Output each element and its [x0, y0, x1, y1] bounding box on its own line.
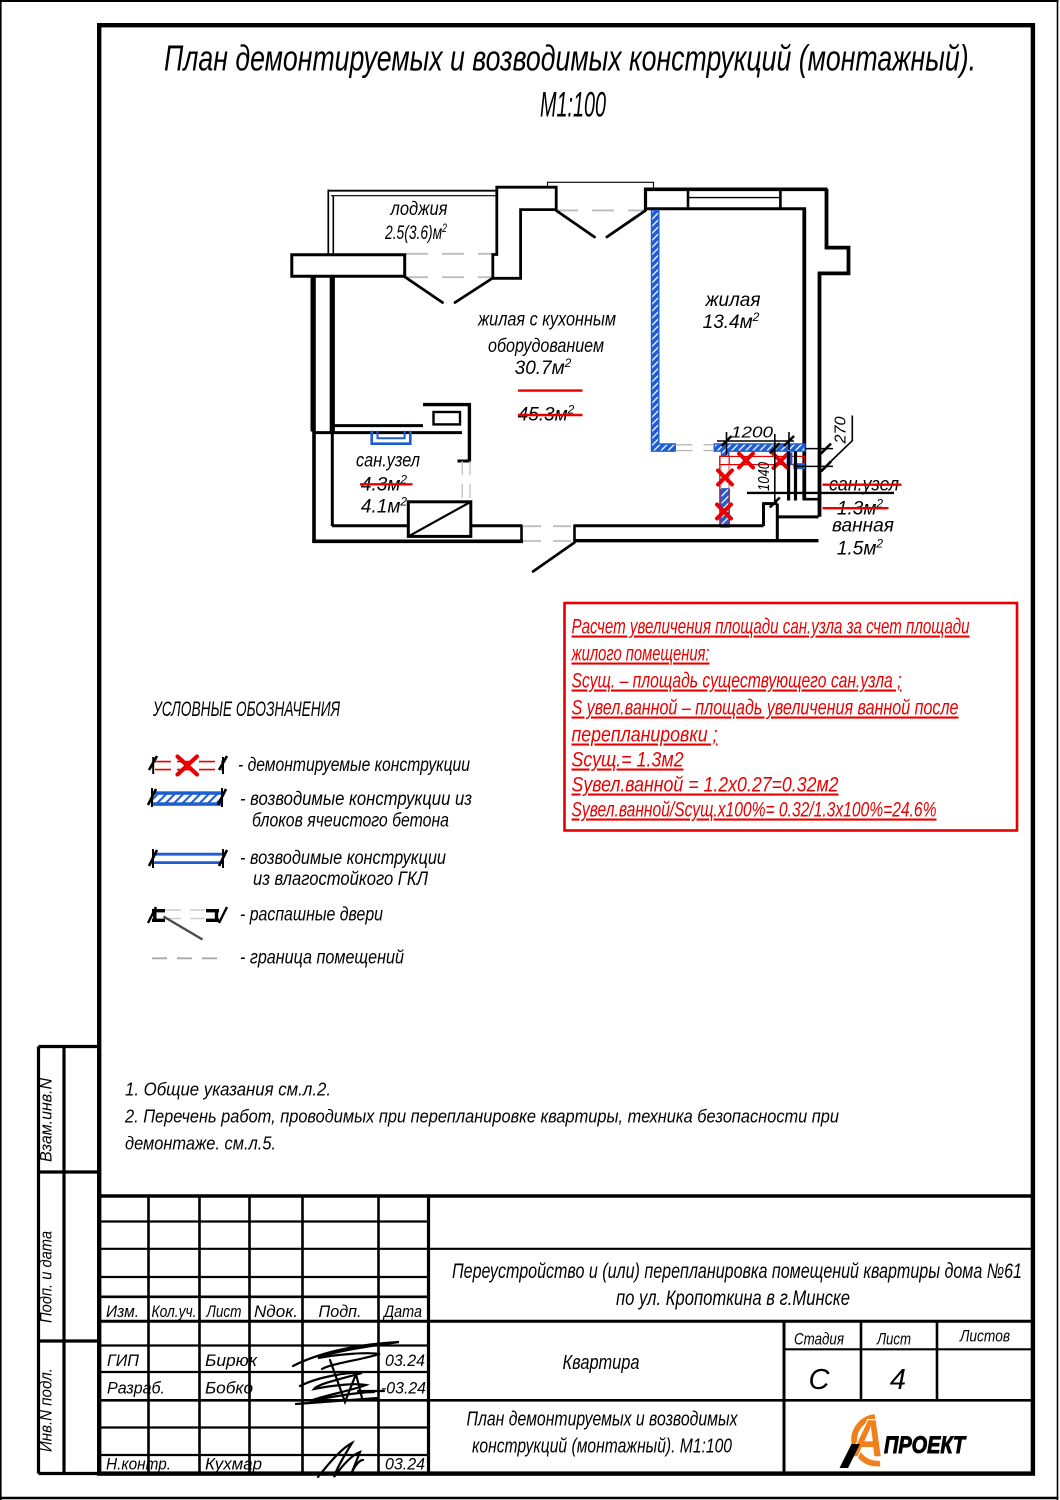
svg-text:Подп. и дата: Подп. и дата [37, 1231, 56, 1323]
svg-text:Sсущ. – площадь существующего: Sсущ. – площадь существующего сан.узла ; [572, 670, 902, 693]
svg-text:1.5м2: 1.5м2 [837, 537, 883, 560]
svg-text:Лист: Лист [876, 1330, 911, 1349]
svg-text:Н.контр.: Н.контр. [106, 1455, 171, 1474]
svg-text:1200: 1200 [731, 425, 773, 442]
svg-text:ПРОЕКТ: ПРОЕКТ [884, 1432, 967, 1459]
svg-text:Стадия: Стадия [794, 1330, 844, 1349]
svg-text:из влагостойкого ГКЛ: из влагостойкого ГКЛ [253, 868, 429, 890]
svg-text:План демонтируемых и возводимы: План демонтируемых и возводимых [467, 1409, 739, 1431]
svg-text:М1:100: М1:100 [540, 86, 606, 125]
svg-text:Nдок.: Nдок. [254, 1302, 298, 1321]
svg-text:конструкций (монтажный). М1:10: конструкций (монтажный). М1:100 [472, 1436, 732, 1458]
svg-text:демонтаже. см.л.5.: демонтаже. см.л.5. [125, 1133, 276, 1154]
svg-text:Изм.: Изм. [106, 1302, 139, 1321]
svg-text:Кухмар: Кухмар [205, 1455, 262, 1474]
svg-text:4: 4 [890, 1364, 906, 1396]
svg-text:-03.24: -03.24 [381, 1379, 426, 1398]
svg-text:2.5(3.6)м2: 2.5(3.6)м2 [384, 221, 447, 244]
svg-text:2. Перечень работ, проводимых: 2. Перечень работ, проводимых при перепл… [124, 1106, 839, 1127]
svg-text:ГИП: ГИП [107, 1351, 140, 1370]
svg-text:жилая: жилая [705, 290, 761, 311]
svg-text:- распашные двери: - распашные двери [240, 904, 383, 926]
svg-text:- граница помещений: - граница помещений [240, 947, 404, 969]
svg-text:S увел.ванной – площадь увелич: S увел.ванной – площадь увеличения ванно… [572, 697, 959, 720]
svg-text:- возводимые конструкции: - возводимые конструкции [240, 847, 446, 869]
svg-text:03.24: 03.24 [385, 1351, 425, 1370]
svg-text:План демонтируемых и возвод: План демонтируемых и возводимых конструк… [164, 38, 976, 79]
svg-text:перепланировки ;: перепланировки ; [572, 724, 718, 747]
svg-text:Дата: Дата [382, 1302, 422, 1321]
svg-text:Листов: Листов [959, 1327, 1010, 1346]
svg-text:жилая с кухонным: жилая с кухонным [477, 310, 616, 331]
svg-text:1040: 1040 [756, 462, 773, 491]
svg-text:13.4м2: 13.4м2 [703, 310, 760, 333]
svg-text:УСЛОВНЫЕ ОБОЗНАЧЕНИЯ: УСЛОВНЫЕ ОБОЗНАЧЕНИЯ [152, 698, 340, 721]
svg-text:30.7м2: 30.7м2 [515, 356, 572, 379]
svg-text:- возводимые конструкции из: - возводимые конструкции из [240, 788, 472, 810]
svg-text:Sувел.ванной/Sсущ.х100%= 0.32/: Sувел.ванной/Sсущ.х100%= 0.32/1.3х100%=2… [572, 799, 937, 822]
svg-text:Лист: Лист [206, 1302, 242, 1321]
svg-text:Взам.инв.N: Взам.инв.N [37, 1077, 56, 1162]
svg-text:жилого помещения:: жилого помещения: [571, 643, 710, 666]
svg-text:Переустройство и (или) перепла: Переустройство и (или) перепланировка по… [452, 1260, 1022, 1283]
svg-text:270: 270 [833, 416, 850, 444]
svg-text:А: А [850, 1410, 884, 1468]
svg-text:ванная: ванная [832, 516, 894, 537]
svg-text:Расчет увеличения площади сан.: Расчет увеличения площади сан.узла за сч… [572, 616, 970, 639]
svg-text:1. Общие указания см.л.2.: 1. Общие указания см.л.2. [125, 1079, 331, 1100]
svg-text:- демонтируемые конструкции: - демонтируемые конструкции [238, 754, 470, 776]
svg-text:Бобко: Бобко [205, 1379, 253, 1398]
svg-text:Подп.: Подп. [319, 1302, 362, 1321]
svg-text:Sувел.ванной = 1.2х0.27=0.32м2: Sувел.ванной = 1.2х0.27=0.32м2 [572, 774, 839, 797]
svg-text:Разраб.: Разраб. [107, 1379, 165, 1398]
svg-text:блоков ячеистого бетона: блоков ячеистого бетона [252, 810, 449, 832]
svg-text:лоджия: лоджия [390, 199, 448, 220]
svg-text:Квартира: Квартира [563, 1352, 640, 1374]
svg-text:03.24: 03.24 [385, 1455, 425, 1474]
svg-text:Кол.уч.: Кол.уч. [152, 1302, 197, 1321]
svg-text:Бирюк: Бирюк [205, 1351, 258, 1370]
svg-text:по ул. Кропоткина в г.Минске: по ул. Кропоткина в г.Минске [616, 1287, 850, 1310]
svg-text:сан.узел: сан.узел [356, 451, 420, 472]
svg-text:оборудованием: оборудованием [488, 336, 604, 357]
svg-text:Sсущ.= 1.3м2: Sсущ.= 1.3м2 [572, 749, 684, 772]
svg-text:Инв.N подл.: Инв.N подл. [37, 1368, 56, 1452]
svg-text:4.1м2: 4.1м2 [361, 495, 407, 518]
svg-text:С: С [809, 1364, 831, 1396]
